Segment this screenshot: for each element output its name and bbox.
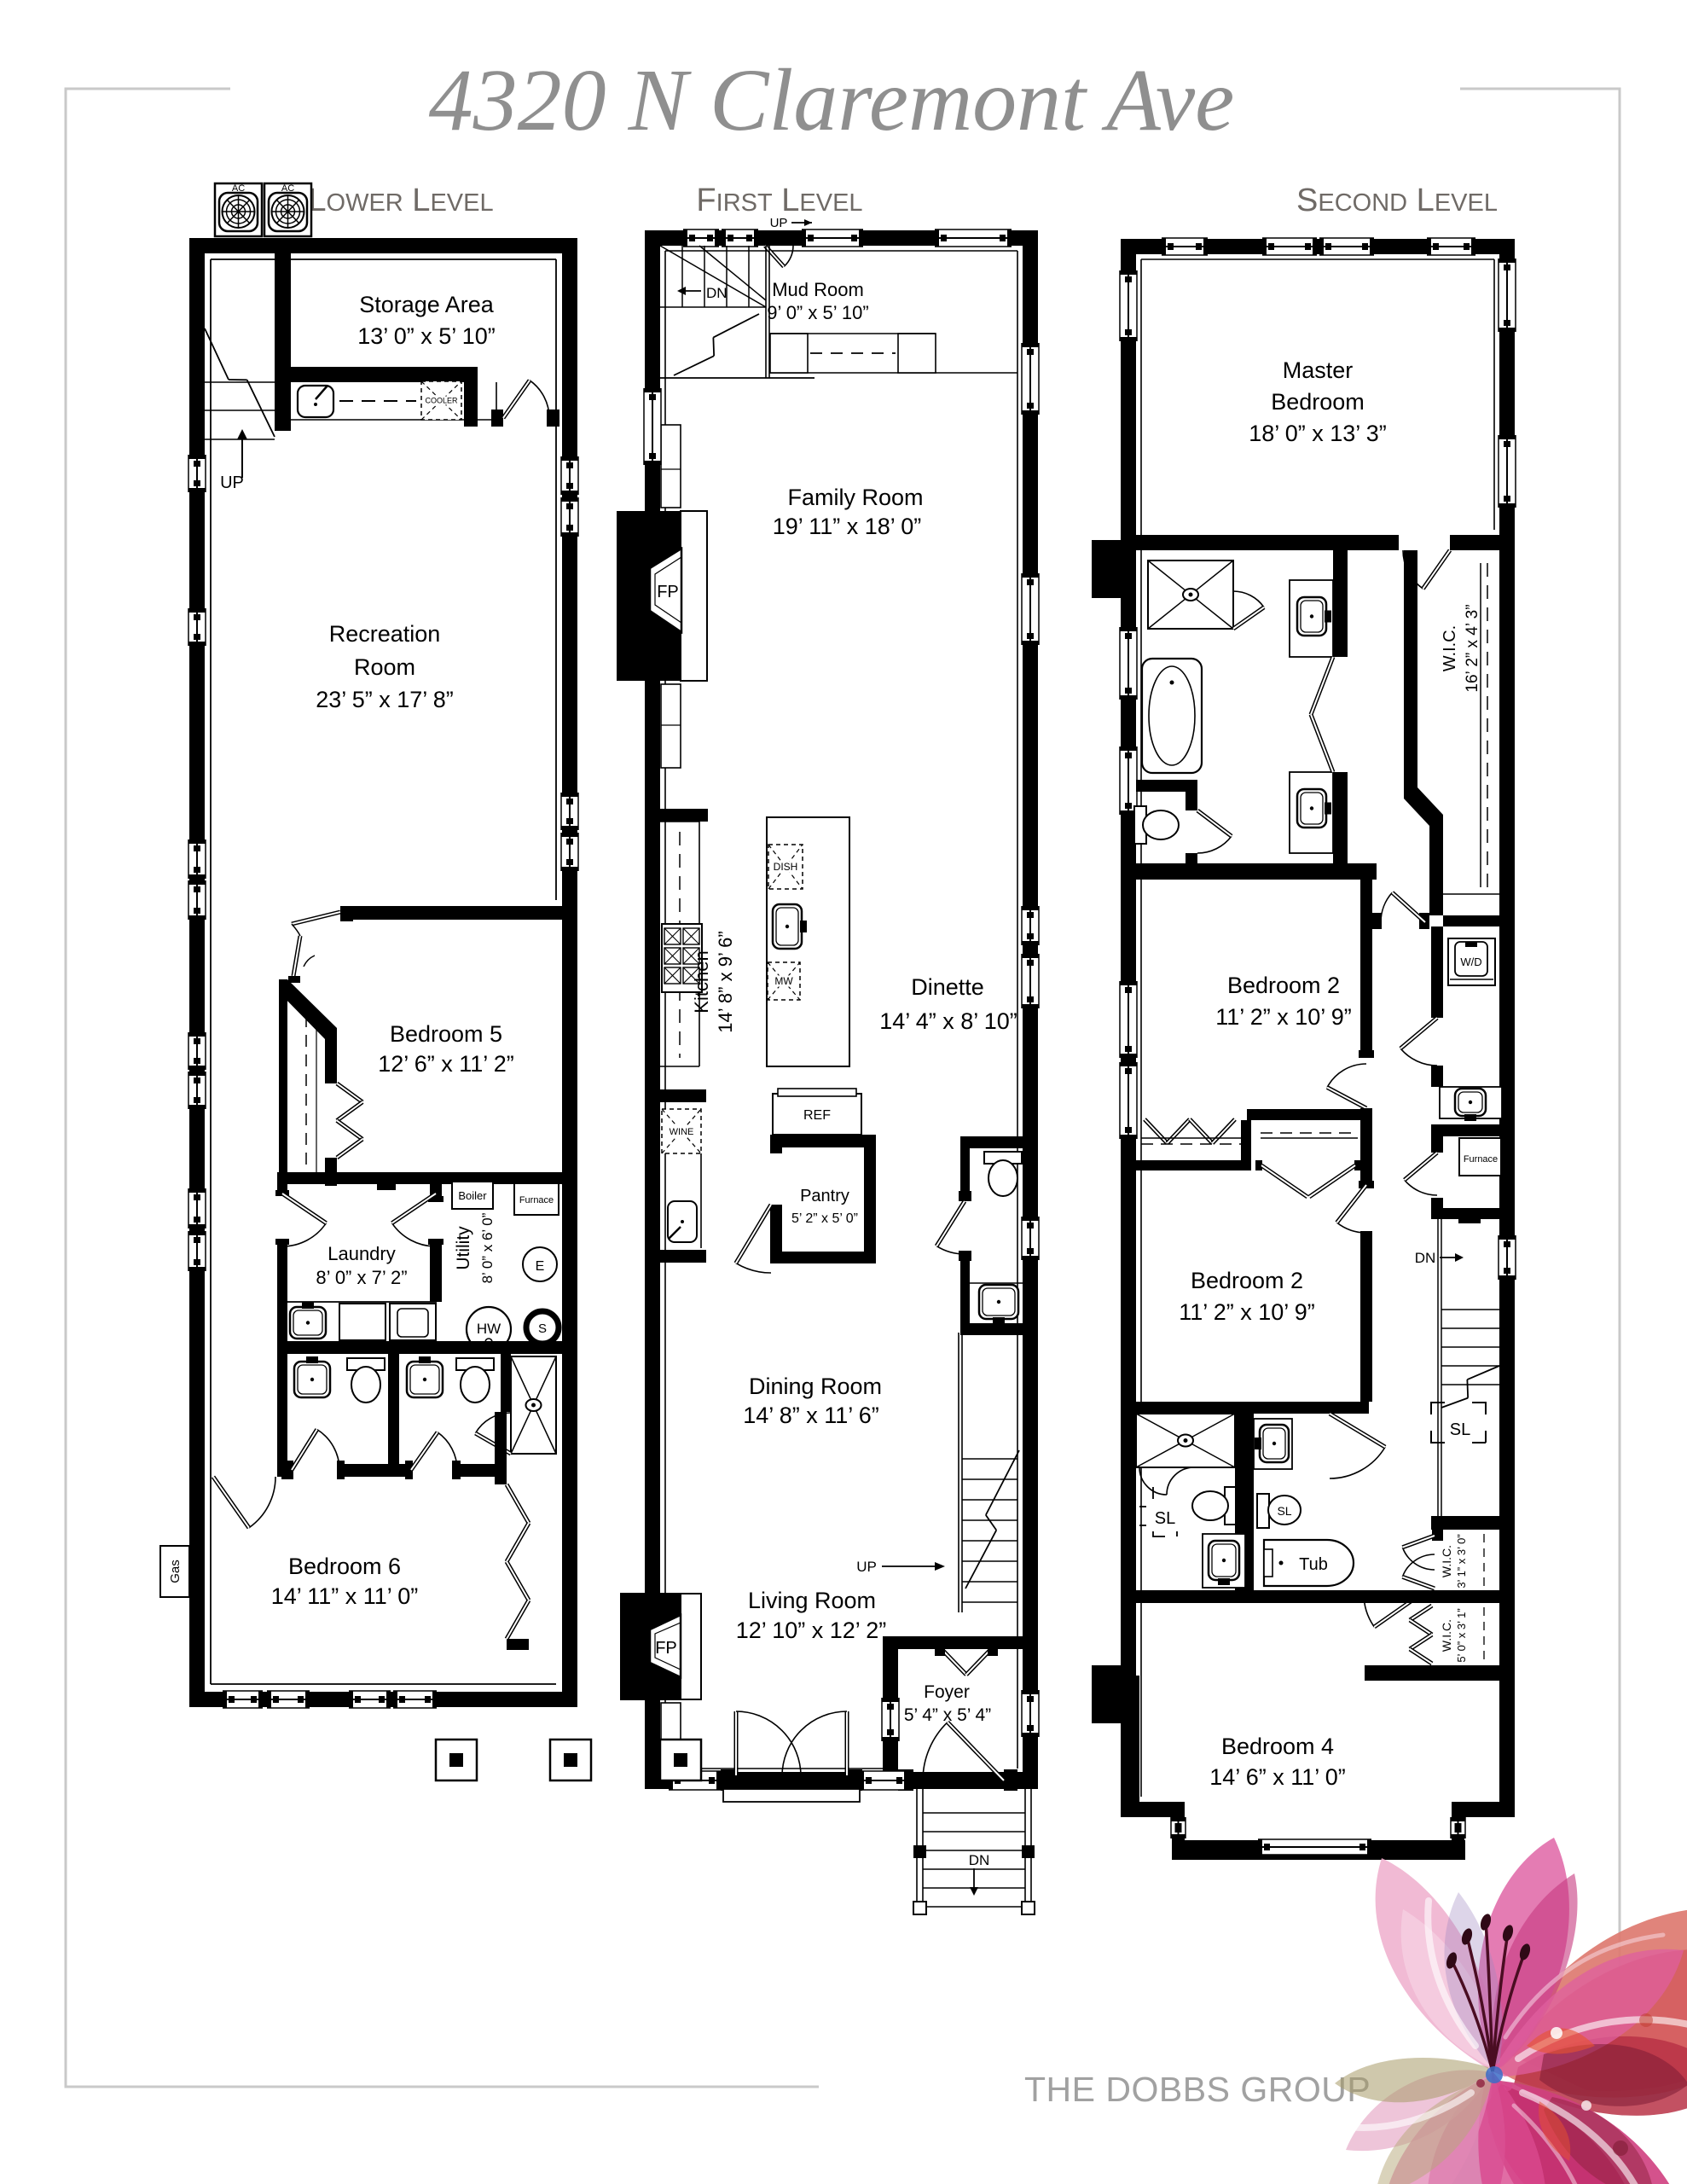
svg-text:AC: AC [281, 183, 294, 194]
svg-text:REF: REF [803, 1108, 831, 1123]
svg-text:18’ 0” x 13’ 3”: 18’ 0” x 13’ 3” [1249, 421, 1387, 446]
svg-text:14’ 8” x 11’ 6”: 14’ 8” x 11’ 6” [743, 1403, 879, 1428]
svg-text:9’ 0” x 5’ 10”: 9’ 0” x 5’ 10” [767, 302, 868, 323]
svg-text:11’ 2” x 10’ 9”: 11’ 2” x 10’ 9” [1215, 1004, 1352, 1030]
svg-text:Tub: Tub [1299, 1555, 1328, 1574]
svg-text:THE DOBBS GROUP: THE DOBBS GROUP [1024, 2070, 1371, 2109]
svg-text:Room: Room [354, 654, 415, 680]
svg-text:23’ 5” x 17’ 8”: 23’ 5” x 17’ 8” [316, 687, 454, 712]
svg-text:5’ 0” x 3’ 1”: 5’ 0” x 3’ 1” [1455, 1608, 1468, 1662]
svg-text:Master: Master [1283, 357, 1354, 383]
svg-text:Pantry: Pantry [800, 1187, 849, 1205]
svg-text:S: S [538, 1321, 547, 1336]
svg-text:14’ 6” x 11’ 0”: 14’ 6” x 11’ 0” [1209, 1764, 1346, 1790]
svg-text:Boiler: Boiler [458, 1189, 487, 1202]
svg-text:FP: FP [655, 1639, 677, 1658]
svg-text:DISH: DISH [774, 861, 798, 873]
svg-text:Storage Area: Storage Area [359, 292, 495, 317]
svg-text:AC: AC [232, 183, 245, 194]
svg-text:Mud Room: Mud Room [772, 279, 864, 300]
svg-text:Bedroom 2: Bedroom 2 [1227, 973, 1340, 998]
svg-text:14’ 11” x 11’ 0”: 14’ 11” x 11’ 0” [271, 1583, 419, 1609]
svg-text:W.I.C.: W.I.C. [1441, 625, 1459, 671]
svg-text:Family Room: Family Room [787, 485, 923, 510]
svg-text:8’ 0” x 6’ 0”: 8’ 0” x 6’ 0” [479, 1212, 496, 1283]
svg-text:WINE: WINE [670, 1127, 694, 1137]
svg-text:8’ 0” x 7’ 2”: 8’ 0” x 7’ 2” [316, 1267, 407, 1288]
svg-text:12’ 6” x 11’ 2”: 12’ 6” x 11’ 2” [378, 1051, 514, 1077]
svg-text:DN: DN [1415, 1250, 1436, 1266]
svg-text:3’ 1” x 3’ 0”: 3’ 1” x 3’ 0” [1455, 1534, 1468, 1588]
svg-text:13’ 0” x 5’ 10”: 13’ 0” x 5’ 10” [357, 323, 496, 349]
svg-text:W.I.C.: W.I.C. [1440, 1619, 1453, 1652]
svg-text:Bedroom 4: Bedroom 4 [1221, 1734, 1334, 1759]
svg-text:DN: DN [706, 285, 728, 301]
svg-text:Bedroom 5: Bedroom 5 [390, 1021, 502, 1047]
svg-text:Dining Room: Dining Room [749, 1374, 882, 1399]
svg-text:Foyer: Foyer [924, 1682, 970, 1702]
svg-text:SL: SL [1155, 1509, 1175, 1528]
svg-text:16’ 2” x 4’ 3”: 16’ 2” x 4’ 3” [1464, 604, 1481, 692]
svg-text:E: E [536, 1259, 545, 1274]
svg-text:12’ 10” x 12’ 2”: 12’ 10” x 12’ 2” [736, 1618, 887, 1643]
svg-text:HW: HW [477, 1321, 501, 1337]
svg-text:UP: UP [770, 216, 788, 230]
svg-text:11’ 2” x 10’ 9”: 11’ 2” x 10’ 9” [1179, 1299, 1315, 1325]
svg-text:DN: DN [969, 1852, 990, 1868]
svg-text:Furnace: Furnace [1464, 1154, 1498, 1165]
svg-text:14’ 4” x 8’ 10”: 14’ 4” x 8’ 10” [879, 1008, 1017, 1034]
svg-text:UP: UP [856, 1559, 877, 1575]
svg-text:5’ 4” x 5’ 4”: 5’ 4” x 5’ 4” [904, 1705, 991, 1725]
svg-text:COOLER: COOLER [425, 397, 458, 405]
svg-text:Living Room: Living Room [748, 1588, 876, 1613]
svg-text:Gas: Gas [168, 1560, 183, 1583]
svg-text:Furnace: Furnace [519, 1195, 554, 1205]
svg-text:Utility: Utility [454, 1226, 473, 1270]
svg-text:Bedroom: Bedroom [1271, 389, 1365, 415]
svg-text:14’ 8” x 9’ 6”: 14’ 8” x 9’ 6” [715, 931, 736, 1032]
svg-text:FP: FP [657, 583, 679, 601]
svg-text:SL: SL [1277, 1504, 1291, 1518]
svg-text:4320 N Claremont Ave: 4320 N Claremont Ave [429, 51, 1235, 149]
svg-text:UP: UP [220, 473, 244, 492]
svg-text:MW: MW [774, 975, 793, 987]
svg-text:FIRST LEVEL: FIRST LEVEL [696, 183, 862, 218]
svg-text:Bedroom 2: Bedroom 2 [1191, 1268, 1303, 1293]
svg-text:W.I.C.: W.I.C. [1440, 1545, 1453, 1577]
svg-text:19’ 11” x 18’ 0”: 19’ 11” x 18’ 0” [773, 514, 922, 539]
svg-text:SL: SL [1450, 1420, 1470, 1439]
svg-text:Bedroom 6: Bedroom 6 [288, 1554, 401, 1579]
svg-text:W/D: W/D [1460, 955, 1481, 968]
svg-text:Recreation: Recreation [329, 621, 441, 647]
svg-text:Kitchen: Kitchen [691, 950, 712, 1013]
svg-text:Laundry: Laundry [328, 1243, 396, 1264]
svg-text:Dinette: Dinette [911, 974, 984, 1000]
svg-text:SECOND LEVEL: SECOND LEVEL [1296, 183, 1498, 218]
svg-text:LOWER LEVEL: LOWER LEVEL [308, 183, 493, 218]
svg-text:5’ 2” x 5’ 0”: 5’ 2” x 5’ 0” [791, 1211, 858, 1226]
